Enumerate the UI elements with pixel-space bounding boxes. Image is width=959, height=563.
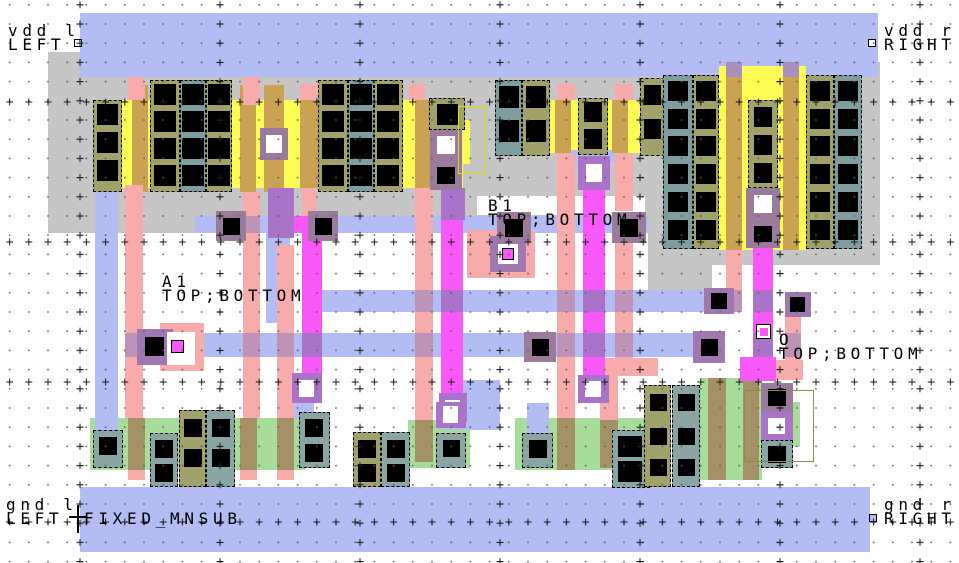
- poly-strip: [555, 100, 571, 153]
- contact: [678, 428, 695, 445]
- poly-strip-over-green: [415, 420, 433, 462]
- contact: [208, 111, 230, 132]
- contact: [584, 102, 602, 122]
- contact: [145, 337, 164, 356]
- contact: [208, 165, 230, 186]
- contact: [350, 111, 372, 132]
- layer-crossing: [615, 290, 633, 312]
- contact: [387, 464, 405, 482]
- metal1-strip: [300, 84, 318, 100]
- pin-marker-b1: [502, 248, 514, 260]
- metal1-strip: [128, 470, 145, 480]
- contact: [305, 444, 323, 462]
- poly-strip-over-green: [708, 378, 726, 480]
- contact: [678, 459, 695, 476]
- contact: [696, 192, 716, 212]
- via-white: [754, 195, 772, 213]
- contact: [696, 164, 716, 184]
- layer-crossing: [583, 290, 605, 312]
- via-strip: [441, 188, 465, 220]
- contact: [754, 226, 772, 242]
- contact: [315, 218, 332, 235]
- contact: [322, 84, 344, 105]
- contact: [154, 84, 176, 105]
- contact: [668, 192, 688, 212]
- poly-strip: [612, 100, 628, 153]
- metal1-strip: [615, 153, 633, 211]
- poly-strip-over-green: [240, 418, 257, 470]
- contact: [526, 86, 546, 108]
- via-white: [437, 136, 455, 154]
- gnd-l-port-label: LEFT: [6, 512, 63, 525]
- contact: [584, 129, 602, 149]
- layer-crossing: [557, 290, 575, 312]
- contact: [99, 437, 117, 455]
- metal2-strip: [740, 357, 776, 381]
- contact: [650, 394, 667, 411]
- contact: [184, 419, 202, 437]
- contact: [668, 136, 688, 156]
- contact: [810, 109, 830, 129]
- vdd-r-port-label: RIGHT: [884, 38, 956, 51]
- metal1-strip: [125, 185, 143, 418]
- poly-strip-over-green: [277, 418, 294, 470]
- contact: [182, 165, 204, 186]
- contact: [155, 464, 173, 482]
- contact: [754, 135, 772, 155]
- contact: [223, 218, 240, 235]
- contact: [437, 104, 458, 125]
- layer-crossing: [243, 333, 260, 357]
- via-white: [585, 381, 601, 397]
- contact: [443, 440, 460, 457]
- vdd-l-port-label: LEFT: [8, 38, 65, 51]
- contact: [208, 84, 230, 105]
- via-white: [266, 135, 282, 153]
- contact: [838, 81, 858, 101]
- contact: [350, 84, 372, 105]
- contact: [754, 163, 772, 183]
- metal1-strip: [409, 84, 425, 100]
- metal1-strip: [240, 470, 257, 480]
- pin-marker-o-core: [760, 328, 768, 336]
- contact: [212, 419, 230, 437]
- contact: [155, 440, 173, 458]
- contact: [668, 164, 688, 184]
- via-strip: [268, 188, 294, 238]
- contact: [838, 109, 858, 129]
- contact: [322, 165, 344, 186]
- contact: [208, 138, 230, 159]
- metal-blue-strip: [95, 188, 118, 430]
- contact: [810, 192, 830, 212]
- contact: [377, 138, 399, 159]
- port-marker-vdd-l: [74, 39, 82, 47]
- contact: [184, 449, 202, 467]
- layer-crossing: [615, 333, 633, 357]
- guide-outline-yellow: [458, 106, 486, 174]
- metal1-strip: [557, 153, 575, 418]
- contact: [97, 132, 118, 153]
- layer-crossing: [583, 333, 605, 357]
- substrate-label: FIXED_MNSUB: [84, 512, 242, 525]
- layer-crossing: [302, 333, 322, 357]
- contact: [387, 440, 405, 458]
- contact: [754, 107, 772, 127]
- layer-crossing: [277, 333, 294, 357]
- metal1-strip: [243, 77, 260, 105]
- contact: [668, 81, 688, 101]
- metal1-strip: [615, 84, 633, 100]
- contact: [790, 297, 805, 312]
- contact: [350, 138, 372, 159]
- contact: [499, 86, 519, 108]
- contact: [696, 136, 716, 156]
- contact: [499, 120, 519, 142]
- contact: [701, 339, 718, 356]
- contact: [838, 164, 858, 184]
- contact: [532, 339, 549, 356]
- contact: [358, 440, 376, 458]
- contact: [358, 464, 376, 482]
- poly-strip: [726, 77, 742, 250]
- poly-strip: [783, 77, 799, 250]
- contact: [437, 167, 455, 184]
- rail-crossing-mark: [726, 62, 742, 77]
- metal1-strip: [128, 77, 145, 100]
- contact: [182, 84, 204, 105]
- contact: [154, 165, 176, 186]
- contact: [154, 138, 176, 159]
- via-white: [443, 406, 458, 423]
- contact: [711, 293, 727, 309]
- poly-strip: [300, 100, 318, 188]
- contact: [182, 138, 204, 159]
- contact: [350, 165, 372, 186]
- contact: [650, 428, 667, 445]
- metal1-strip: [598, 358, 658, 376]
- contact: [838, 136, 858, 156]
- contact: [810, 164, 830, 184]
- layer-crossing: [753, 290, 773, 312]
- layout-canvas[interactable]: vdd_lLEFTvdd_rRIGHTgnd_lLEFTFIXED_MNSUBg…: [0, 0, 959, 563]
- contact: [305, 419, 323, 437]
- contact: [678, 394, 695, 411]
- layer-crossing: [415, 333, 433, 357]
- contact: [618, 436, 642, 457]
- metal-blue-strip: [527, 403, 549, 435]
- contact: [182, 111, 204, 132]
- contact: [668, 220, 688, 240]
- metal1-strip: [277, 470, 294, 480]
- contact: [696, 109, 716, 129]
- contact: [810, 220, 830, 240]
- contact: [154, 111, 176, 132]
- port-marker-vdd-r: [868, 39, 876, 47]
- contact: [810, 81, 830, 101]
- guide-outline-olive: [744, 390, 814, 462]
- port-marker-gnd-r: [869, 514, 877, 522]
- contact: [838, 220, 858, 240]
- contact: [838, 192, 858, 212]
- contact: [529, 440, 547, 458]
- via-white: [586, 164, 602, 182]
- layer-crossing: [441, 290, 463, 312]
- contact: [810, 136, 830, 156]
- layer-crossing: [557, 333, 575, 357]
- rail-crossing-mark: [783, 62, 799, 77]
- contact: [696, 220, 716, 240]
- pin-marker-a1: [171, 340, 184, 353]
- contact: [322, 138, 344, 159]
- contact: [668, 109, 688, 129]
- o-pin-sublabel: TOP;BOTTOM: [779, 347, 922, 360]
- metal1-strip: [557, 84, 575, 100]
- layer-crossing: [415, 290, 433, 312]
- contact: [212, 449, 230, 467]
- a1-pin-sublabel: TOP;BOTTOM: [162, 289, 305, 302]
- contact: [322, 111, 344, 132]
- b1-pin-sublabel: TOP;BOTTOM: [488, 213, 631, 226]
- contact: [644, 119, 661, 139]
- contact: [377, 165, 399, 186]
- contact: [97, 104, 118, 125]
- via-white: [299, 380, 314, 397]
- metal-blue-strip: [320, 290, 712, 312]
- contact: [97, 160, 118, 181]
- gnd-r-port-label: RIGHT: [884, 512, 956, 525]
- contact: [526, 120, 546, 142]
- contact: [377, 84, 399, 105]
- nwell-region: [648, 265, 712, 292]
- contact: [618, 461, 642, 482]
- contact: [644, 85, 661, 105]
- contact: [650, 459, 667, 476]
- poly-strip-over-green: [128, 418, 145, 470]
- contact: [696, 81, 716, 101]
- contact: [377, 111, 399, 132]
- poly-strip: [132, 85, 148, 192]
- poly-strip-over-green: [557, 418, 575, 470]
